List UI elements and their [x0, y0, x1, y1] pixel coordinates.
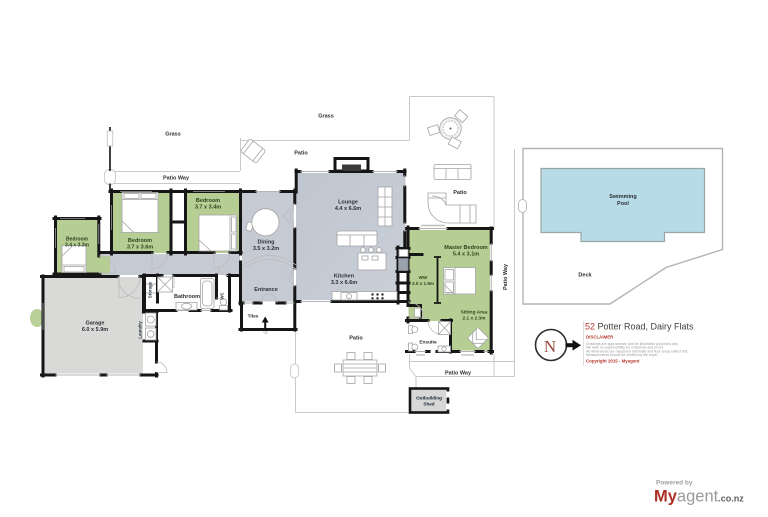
- svg-text:Entrance: Entrance: [254, 287, 278, 293]
- svg-text:3.7 x 3.4m: 3.7 x 3.4m: [195, 205, 221, 211]
- svg-text:DISCLAIMER: DISCLAIMER: [586, 335, 614, 340]
- svg-text:3.7 x 3.6m: 3.7 x 3.6m: [127, 245, 153, 251]
- svg-text:Sitting Area: Sitting Area: [461, 310, 488, 316]
- svg-text:Patio Way: Patio Way: [163, 176, 190, 182]
- svg-text:Pool: Pool: [617, 201, 629, 207]
- svg-text:Deck: Deck: [578, 273, 592, 279]
- svg-text:Master Bedroom: Master Bedroom: [444, 245, 488, 251]
- svg-text:Grass: Grass: [318, 114, 334, 120]
- svg-text:Lounge: Lounge: [338, 200, 358, 206]
- svg-text:Outbuilding: Outbuilding: [416, 396, 442, 401]
- svg-text:Laundry: Laundry: [138, 321, 143, 339]
- svg-text:Garage: Garage: [86, 321, 105, 327]
- svg-text:3.5 x 3.2m: 3.5 x 3.2m: [253, 246, 279, 252]
- svg-text:Ensuite: Ensuite: [419, 340, 437, 346]
- svg-text:Bedroom: Bedroom: [196, 198, 220, 204]
- svg-text:4.4 x 6.6m: 4.4 x 6.6m: [335, 206, 361, 212]
- svg-text:Patio: Patio: [294, 151, 308, 157]
- svg-text:6.0 x 5.9m: 6.0 x 5.9m: [82, 327, 108, 333]
- svg-text:Up: Up: [263, 331, 267, 335]
- svg-text:Swimming: Swimming: [609, 194, 637, 200]
- svg-text:Patio Way: Patio Way: [445, 371, 472, 377]
- svg-text:3.4 x 3.3m: 3.4 x 3.3m: [65, 243, 89, 249]
- svg-text:3.0 x 1.9m: 3.0 x 1.9m: [412, 281, 434, 286]
- svg-text:Measurements should be verifie: Measurements should be verified by the b…: [586, 353, 659, 357]
- svg-text:N: N: [544, 337, 556, 356]
- svg-text:Bathroom: Bathroom: [174, 294, 200, 300]
- svg-text:Tiles: Tiles: [248, 314, 259, 320]
- svg-text:Patio Way: Patio Way: [503, 263, 509, 290]
- svg-text:Bedroom: Bedroom: [128, 238, 152, 244]
- svg-text:Patio: Patio: [453, 190, 467, 196]
- svg-text:Copyright 2015 - Myagent: Copyright 2015 - Myagent: [586, 359, 640, 364]
- svg-text:Grass: Grass: [165, 132, 181, 138]
- svg-text:Powered by: Powered by: [656, 480, 693, 487]
- svg-text:3.3 x 6.6m: 3.3 x 6.6m: [331, 280, 357, 286]
- svg-text:2.1 x 2.3m: 2.1 x 2.3m: [463, 316, 486, 322]
- svg-text:Patio: Patio: [349, 336, 363, 342]
- svg-text:Dining: Dining: [257, 240, 274, 246]
- svg-text:5.4 x 3.1m: 5.4 x 3.1m: [453, 252, 479, 258]
- svg-text:WW: WW: [419, 275, 428, 280]
- svg-text:52 Potter Road, Dairy Flats: 52 Potter Road, Dairy Flats: [585, 322, 694, 332]
- svg-text:Shed: Shed: [423, 402, 434, 407]
- svg-text:Storage: Storage: [148, 281, 153, 298]
- svg-text:Kitchen: Kitchen: [334, 274, 355, 280]
- svg-text:WC: WC: [220, 292, 225, 300]
